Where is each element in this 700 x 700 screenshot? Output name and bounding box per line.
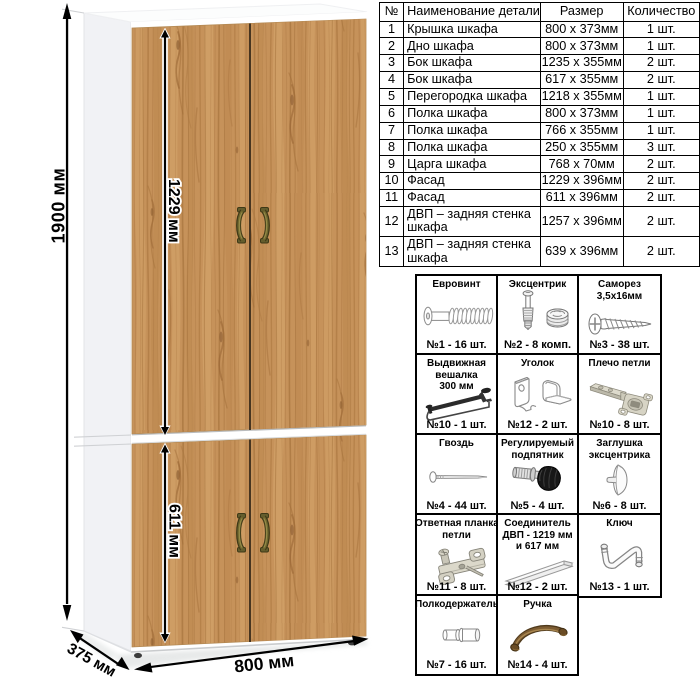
svg-text:1900 мм: 1900 мм <box>49 168 69 244</box>
svg-text:611 мм: 611 мм <box>166 504 183 558</box>
svg-text:1229 мм: 1229 мм <box>165 179 182 243</box>
